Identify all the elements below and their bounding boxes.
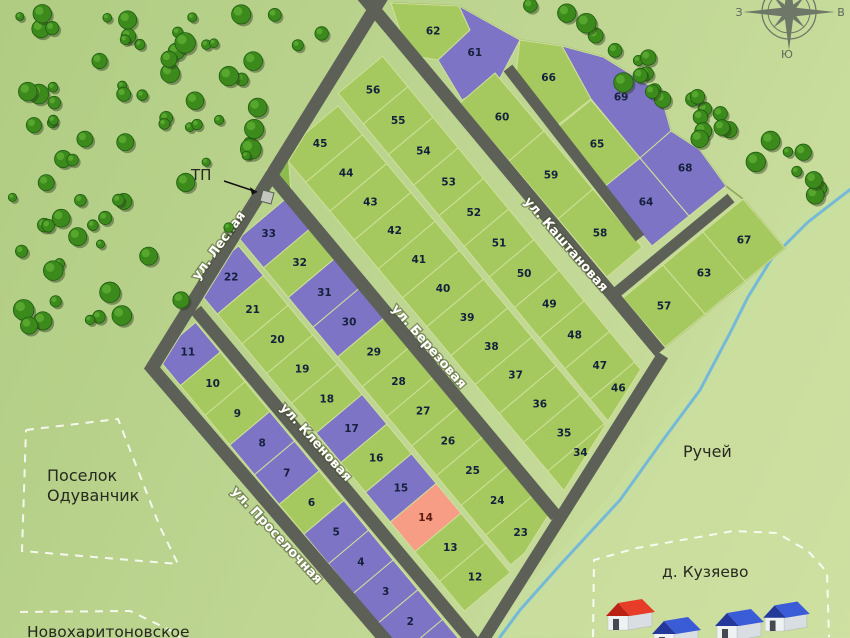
- plot-number: 52: [466, 207, 481, 219]
- tree-icon: [15, 245, 30, 260]
- tree-icon: [100, 282, 123, 305]
- plot-number: 31: [317, 287, 332, 299]
- plot-number: 42: [387, 225, 402, 237]
- plot-number: 50: [517, 268, 532, 280]
- tree-icon: [761, 131, 782, 152]
- plot-number: 19: [295, 364, 310, 376]
- plot-number: 18: [319, 393, 334, 405]
- plot-number: 34: [573, 447, 588, 459]
- plot-number: 60: [495, 112, 510, 124]
- tree-icon: [315, 27, 331, 43]
- compass-letter: Ю: [781, 48, 793, 61]
- plot-number: 63: [697, 268, 712, 280]
- plot-number: 41: [411, 254, 426, 266]
- tree-icon: [8, 193, 19, 204]
- plot-number: 37: [508, 370, 523, 382]
- plot-number: 36: [532, 399, 547, 411]
- plot-number: 55: [391, 115, 406, 127]
- tree-icon: [87, 220, 100, 233]
- village-label: д. Кузяево: [662, 563, 748, 581]
- plot-number: 65: [590, 139, 605, 151]
- plot-number: 57: [657, 301, 672, 313]
- tree-icon: [248, 98, 269, 119]
- tree-icon: [746, 152, 768, 174]
- plot-number: 53: [441, 176, 456, 188]
- plot-number: 4: [357, 556, 364, 568]
- tree-icon: [173, 292, 192, 311]
- district-label: Новохаритоновское: [27, 623, 190, 638]
- plot-number: 17: [344, 423, 359, 435]
- plot-number: 67: [737, 235, 752, 247]
- tree-icon: [232, 5, 253, 27]
- tree-icon: [244, 52, 265, 73]
- plot-number: 12: [468, 572, 483, 584]
- plot-number: 26: [441, 435, 456, 447]
- plot-number: 44: [339, 167, 354, 179]
- plot-number: 68: [678, 163, 693, 175]
- plot-number: 64: [639, 197, 654, 209]
- tree-icon: [186, 92, 206, 112]
- plot-number: 23: [513, 527, 528, 539]
- tree-icon: [112, 306, 134, 328]
- plot-number: 13: [443, 542, 458, 554]
- plot-number: 15: [394, 482, 409, 494]
- tree-icon: [558, 4, 579, 25]
- plot-number: 3: [382, 586, 389, 598]
- plot-number: 2: [407, 616, 414, 628]
- tree-icon: [99, 211, 114, 227]
- plot-number: 40: [436, 283, 451, 295]
- tree-icon: [50, 296, 64, 310]
- plot-number: 48: [567, 329, 582, 341]
- tree-icon: [77, 131, 95, 149]
- plot-number: 11: [181, 346, 196, 358]
- plot-number: 47: [592, 360, 607, 372]
- compass-rose-icon: СЮВЗ: [735, 0, 844, 61]
- tree-icon: [268, 8, 283, 23]
- plot-number: 24: [490, 495, 505, 507]
- tree-icon: [523, 0, 539, 15]
- tp-label: ТП: [190, 166, 211, 184]
- plot-number: 62: [426, 25, 441, 37]
- tree-icon: [214, 115, 226, 127]
- tree-icon: [577, 13, 599, 35]
- plot-number: 39: [460, 312, 475, 324]
- tree-icon: [117, 134, 136, 153]
- plot-number: 46: [611, 382, 626, 394]
- tree-icon: [292, 40, 305, 54]
- plot-number: 38: [484, 341, 499, 353]
- plot-number: 51: [492, 238, 507, 250]
- tree-icon: [38, 175, 56, 194]
- plot-number: 33: [261, 228, 276, 240]
- tree-icon: [103, 13, 114, 24]
- plot-number: 21: [245, 304, 260, 316]
- plot-number: 22: [224, 271, 239, 283]
- tree-icon: [137, 90, 150, 103]
- tree-icon: [140, 247, 160, 267]
- plot-number: 58: [593, 228, 608, 240]
- plot-number: 27: [416, 406, 431, 418]
- tree-icon: [96, 240, 106, 251]
- plot-number: 35: [557, 428, 572, 440]
- tree-icon: [219, 66, 241, 88]
- plot-number: 8: [258, 438, 265, 450]
- plot-number: 5: [333, 527, 340, 539]
- plot-number: 14: [418, 512, 433, 524]
- plot-number: 45: [313, 138, 328, 150]
- map-canvas: 1110987654322221201918171615141312333231…: [0, 0, 850, 638]
- plot-number: 54: [416, 146, 431, 158]
- plot-number: 61: [468, 47, 483, 59]
- tree-icon: [805, 171, 824, 190]
- tree-icon: [792, 166, 805, 179]
- plot-number: 49: [542, 299, 557, 311]
- plot-number: 16: [369, 453, 384, 465]
- tree-icon: [26, 117, 43, 135]
- tree-icon: [117, 87, 133, 103]
- plot-number: 9: [234, 408, 241, 420]
- plot-number: 66: [541, 72, 556, 84]
- plot-number: 56: [366, 85, 381, 97]
- tree-icon: [75, 194, 89, 208]
- plot-number: 10: [205, 378, 220, 390]
- plot-number: 6: [308, 497, 315, 509]
- tree-icon: [92, 53, 109, 71]
- plot-number: 43: [363, 196, 378, 208]
- plot-number: 30: [342, 317, 357, 329]
- tree-icon: [16, 13, 26, 23]
- settlement-label: Поселок: [47, 466, 117, 485]
- site-plan-map: 1110987654322221201918171615141312333231…: [0, 0, 850, 638]
- compass-letter: З: [735, 6, 742, 19]
- plot-number: 28: [391, 376, 406, 388]
- tree-icon: [608, 43, 624, 59]
- settlement-label: Одуванчик: [47, 486, 140, 505]
- plot-number: 32: [292, 257, 307, 269]
- plot-number: 20: [270, 334, 285, 346]
- tp-transformer-marker: [260, 190, 274, 204]
- plot-number: 29: [366, 346, 381, 358]
- tree-icon: [69, 228, 89, 249]
- stream-label: Ручей: [683, 442, 732, 461]
- plot-number: 25: [465, 465, 480, 477]
- compass-letter: В: [837, 6, 845, 19]
- tree-icon: [188, 13, 199, 25]
- plot-number: 59: [544, 170, 559, 182]
- tree-icon: [119, 11, 139, 32]
- tree-icon: [795, 144, 814, 163]
- plot-number: 7: [283, 467, 290, 479]
- tree-icon: [783, 147, 795, 159]
- tree-icon: [48, 96, 63, 111]
